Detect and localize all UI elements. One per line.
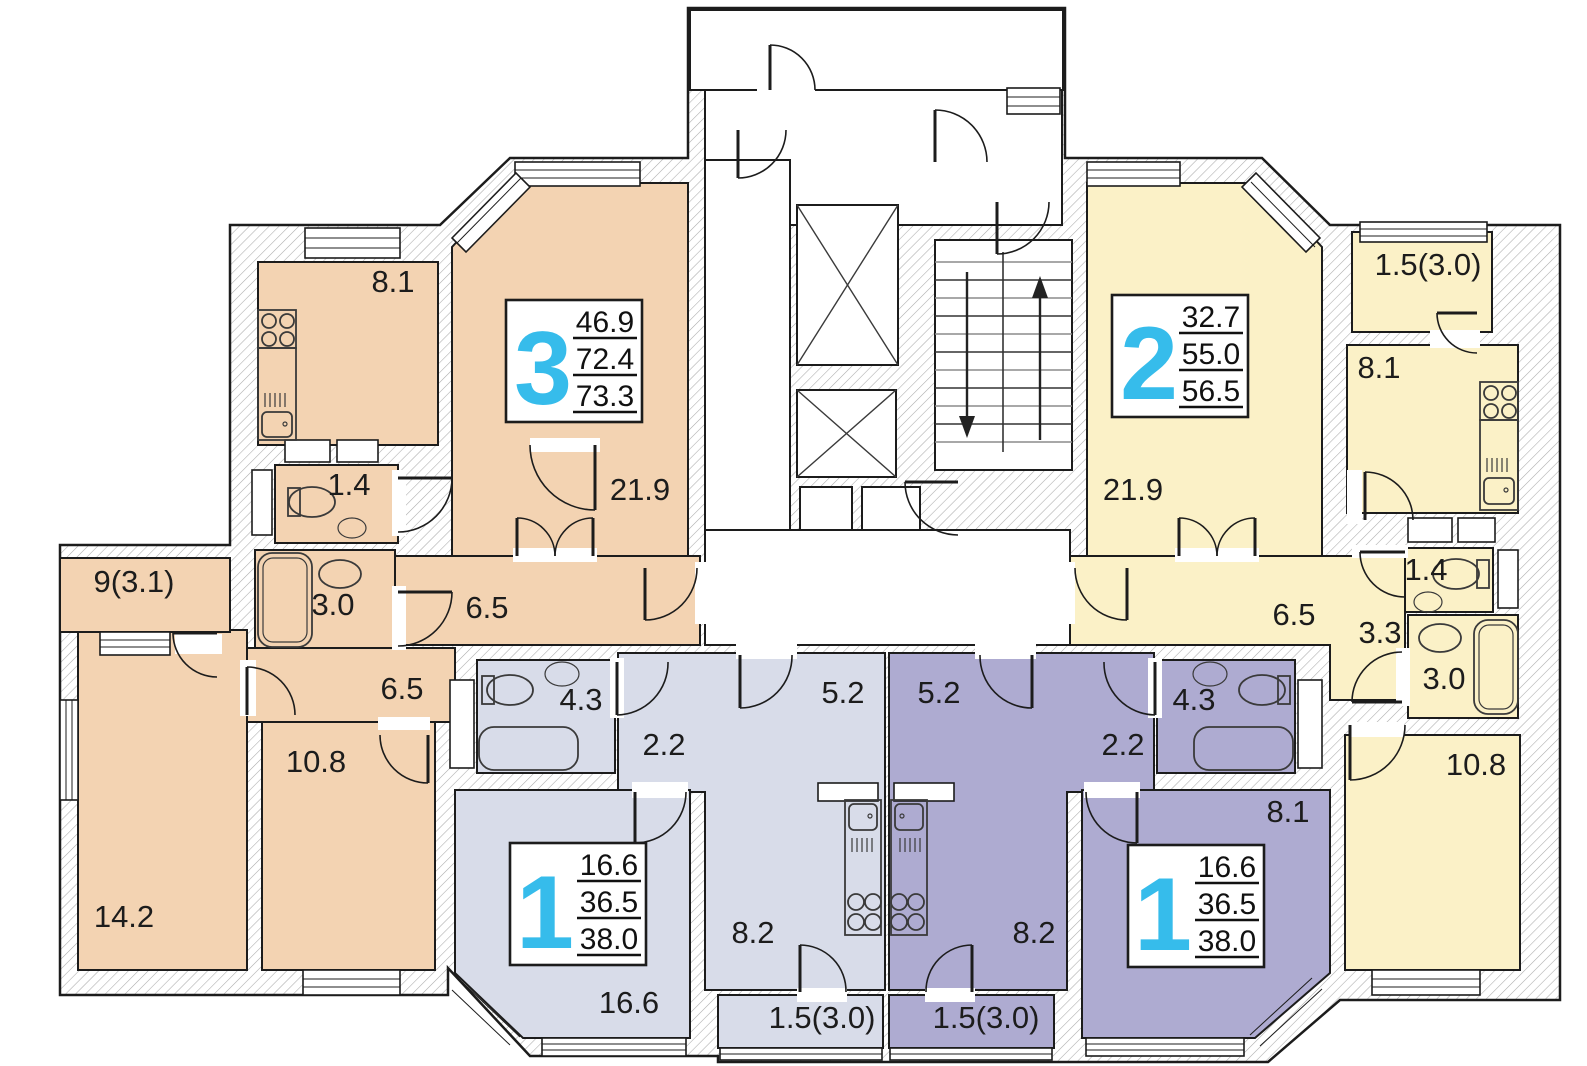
room-label: 8.2	[1012, 915, 1055, 950]
room-label: 1.4	[1404, 552, 1447, 587]
apartment-info-2: 2 32.7 55.0 56.5	[1112, 295, 1248, 422]
area-total: 72.4	[576, 343, 634, 376]
room-label: 21.9	[1103, 472, 1163, 507]
room-label: 8.1	[1357, 350, 1400, 385]
room-label: 21.9	[610, 472, 670, 507]
room-label: 8.1	[1266, 794, 1309, 829]
floor-plan: 3 46.9 72.4 73.3 2 32.7 55.0 56.5 1 16.6…	[0, 0, 1587, 1066]
room-label: 1.5(3.0)	[933, 1000, 1040, 1035]
apartment-info-3: 3 46.9 72.4 73.3	[506, 300, 642, 427]
room-label: 10.8	[1446, 747, 1506, 782]
room-label: 9(3.1)	[94, 564, 175, 599]
area-overall: 38.0	[580, 923, 638, 956]
elevator-shaft-1	[797, 205, 898, 365]
room-label: 3.0	[311, 587, 354, 622]
room-label: 2.2	[642, 727, 685, 762]
room-label: 5.2	[917, 675, 960, 710]
room-label: 10.8	[286, 744, 346, 779]
room-label: 8.2	[731, 915, 774, 950]
room-label: 3.0	[1422, 661, 1465, 696]
room-label: 6.5	[465, 590, 508, 625]
area-living: 32.7	[1182, 301, 1240, 334]
entrance-vestibule	[690, 10, 1063, 90]
room-label: 8.1	[371, 264, 414, 299]
room-label: 2.2	[1101, 727, 1144, 762]
apartment-info-1-left: 1 16.6 36.5 38.0	[510, 843, 646, 971]
room-label: 1.5(3.0)	[1375, 247, 1482, 282]
service-shaft-1	[800, 487, 852, 530]
area-total: 36.5	[580, 886, 638, 919]
core-corridor	[705, 530, 1070, 645]
area-living: 16.6	[580, 849, 638, 882]
room-label: 6.5	[380, 671, 423, 706]
apartment-info-1-right: 1 16.6 36.5 38.0	[1128, 845, 1264, 973]
area-living: 46.9	[576, 306, 634, 339]
apartment-number: 1	[516, 855, 574, 971]
floor-plan-drawing: 3 46.9 72.4 73.3 2 32.7 55.0 56.5 1 16.6…	[0, 0, 1587, 1066]
area-living: 16.6	[1198, 851, 1256, 884]
room-label: 3.3	[1358, 615, 1401, 650]
room-label: 1.5(3.0)	[769, 1000, 876, 1035]
room-label: 4.3	[559, 682, 602, 717]
elevator-shaft-2	[797, 390, 896, 477]
room-hall-3	[395, 556, 700, 645]
area-overall: 38.0	[1198, 925, 1256, 958]
area-overall: 56.5	[1182, 375, 1240, 408]
room-label: 6.5	[1272, 597, 1315, 632]
room-label: 14.2	[94, 899, 154, 934]
room-label: 4.3	[1172, 682, 1215, 717]
room-label: 16.6	[599, 985, 659, 1020]
area-overall: 73.3	[576, 380, 634, 413]
room-label: 5.2	[821, 675, 864, 710]
area-total: 36.5	[1198, 888, 1256, 921]
apartment-number: 2	[1120, 306, 1178, 422]
room-label: 1.4	[327, 467, 370, 502]
apartment-number: 3	[514, 311, 572, 427]
apartment-number: 1	[1134, 857, 1192, 973]
area-total: 55.0	[1182, 338, 1240, 371]
